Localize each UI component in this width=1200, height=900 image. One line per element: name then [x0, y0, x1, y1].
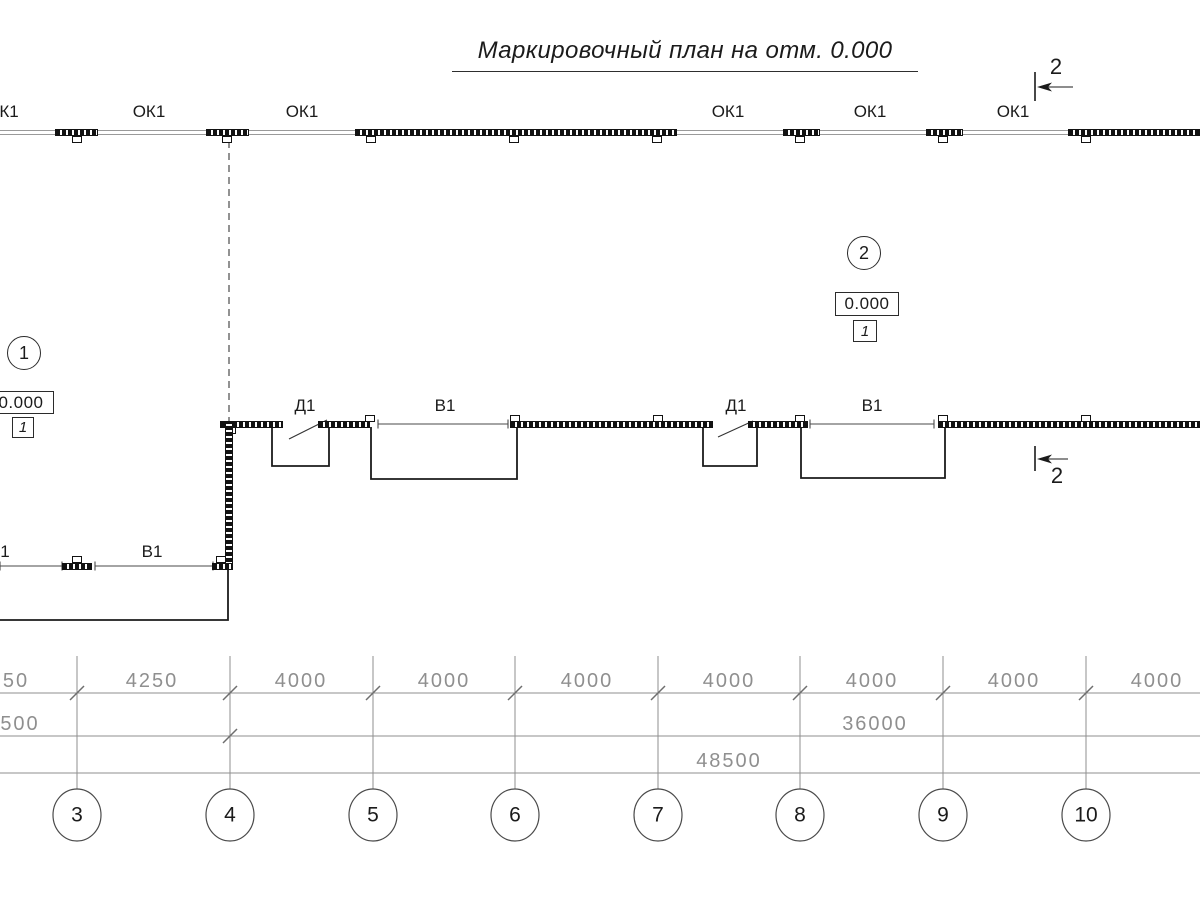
window-mark-label: ОК1	[133, 103, 166, 120]
window-symbol	[55, 129, 98, 136]
dimension-label: 36000	[842, 714, 908, 734]
corner-wall	[225, 421, 233, 569]
dimension-label: 4000	[703, 671, 756, 691]
wall-tab	[365, 415, 375, 422]
dimension-label: 50	[3, 671, 29, 691]
elevation-ref-box: 1	[12, 417, 34, 438]
dimension-label: 4250	[126, 671, 179, 691]
gate-mark-label: В1	[862, 397, 883, 414]
annotation-layer: Маркировочный план на отм. 0.000 К1ОК1ОК…	[0, 0, 1200, 900]
window-tab	[1081, 136, 1091, 143]
bottom-wall-segment	[62, 563, 92, 570]
window-tab	[222, 136, 232, 143]
elevation-value-box: 0.000	[835, 292, 899, 316]
gate-mark-label: В1	[435, 397, 456, 414]
window-mark-label: ОК1	[854, 103, 887, 120]
dimension-label: 4000	[418, 671, 471, 691]
dimension-label: 500	[0, 714, 39, 734]
window-symbol	[783, 129, 820, 136]
window-symbol	[1068, 129, 1200, 136]
wall-tab	[653, 415, 663, 422]
elevation-value-box: 0.000	[0, 391, 54, 414]
dimension-label: 4000	[846, 671, 899, 691]
window-tab	[72, 136, 82, 143]
dimension-label: 48500	[696, 751, 762, 771]
dimension-label: 4000	[561, 671, 614, 691]
area-marker: 1	[7, 336, 41, 370]
door-mark-label: Д1	[726, 397, 747, 414]
wall-tab	[1081, 415, 1091, 422]
window-mark-label: ОК1	[997, 103, 1030, 120]
window-mark-label: ОК1	[286, 103, 319, 120]
mid-wall-segment	[748, 421, 808, 428]
gate-mark-label: В1	[142, 543, 163, 560]
window-tab	[938, 136, 948, 143]
door-mark-label: Д1	[295, 397, 316, 414]
wall-tab	[72, 556, 82, 563]
page-title: Маркировочный план на отм. 0.000	[452, 37, 918, 72]
wall-tab	[938, 415, 948, 422]
section-mark-label: 2	[1051, 465, 1063, 487]
window-symbol	[355, 129, 677, 136]
dimension-label: 4000	[1131, 671, 1184, 691]
dimension-label: 4000	[988, 671, 1041, 691]
mid-wall-segment	[510, 421, 713, 428]
window-mark-label: ОК1	[712, 103, 745, 120]
window-tab	[652, 136, 662, 143]
window-tab	[509, 136, 519, 143]
dimension-label: 4000	[275, 671, 328, 691]
wall-tab	[216, 556, 226, 563]
drawing-canvas: 345678910 Маркировочный план на отм. 0.0…	[0, 0, 1200, 900]
wall-tab	[510, 415, 520, 422]
gate-mark-label: 1	[0, 543, 9, 560]
mid-wall-segment	[318, 421, 370, 428]
area-marker: 2	[847, 236, 881, 270]
mid-wall-segment	[938, 421, 1200, 428]
elevation-ref-box: 1	[853, 320, 877, 342]
window-mark-label: К1	[0, 103, 19, 120]
bottom-wall-segment	[212, 563, 233, 570]
window-symbol	[926, 129, 963, 136]
section-mark-label: 2	[1050, 56, 1062, 78]
window-symbol	[206, 129, 249, 136]
window-tab	[366, 136, 376, 143]
wall-tab	[795, 415, 805, 422]
window-tab	[795, 136, 805, 143]
